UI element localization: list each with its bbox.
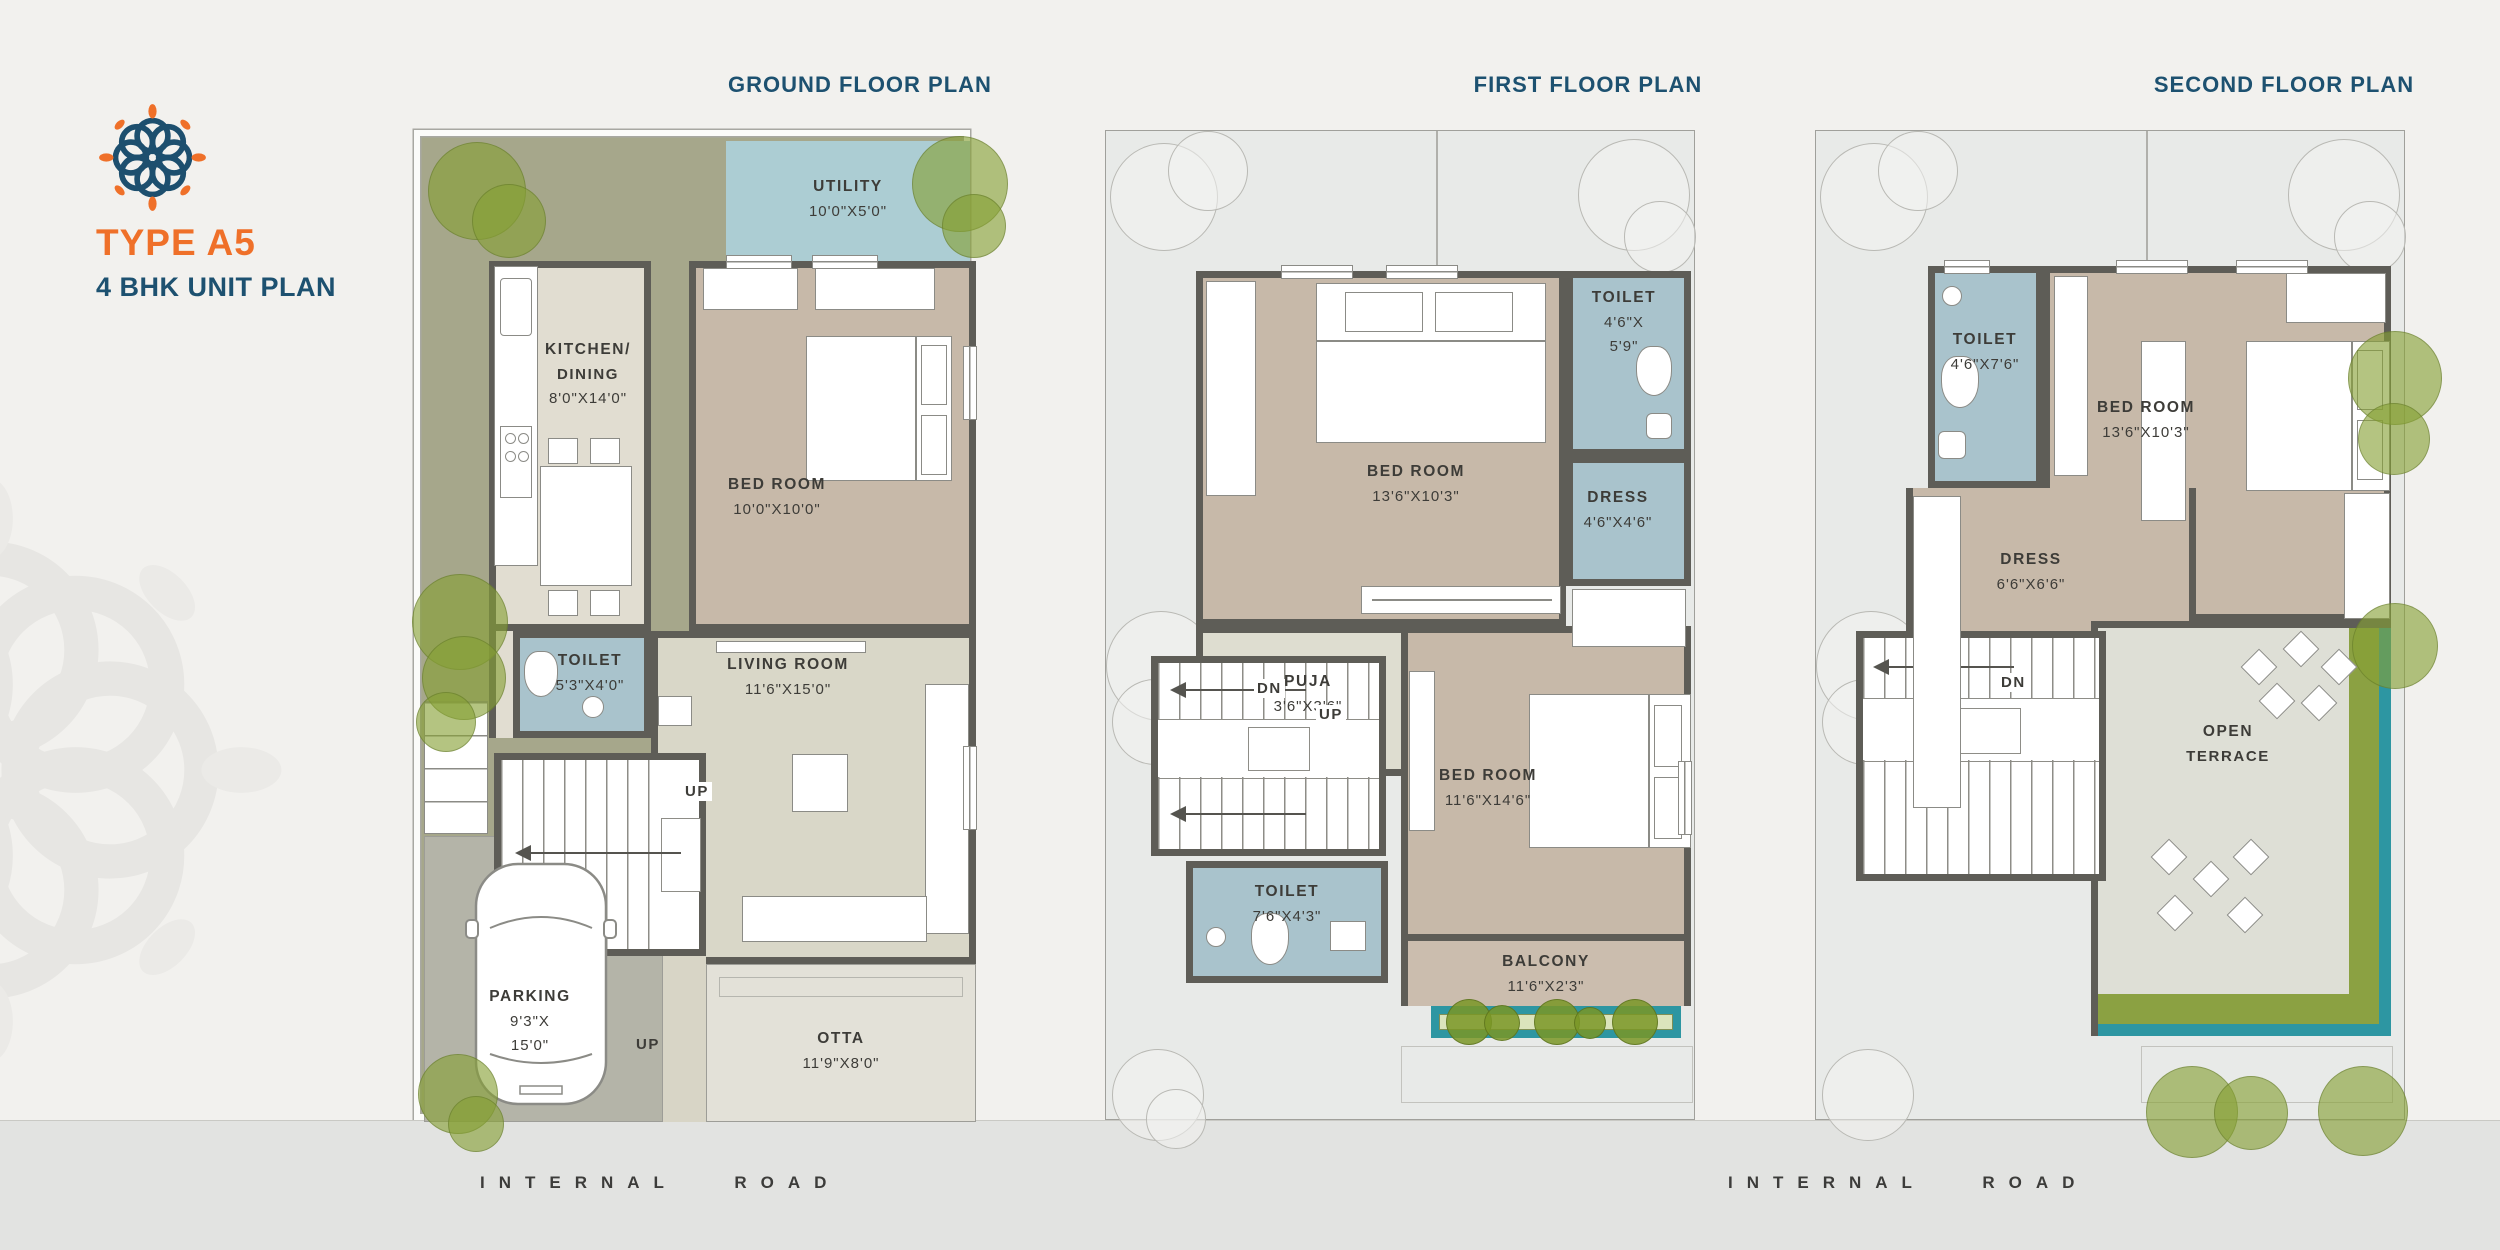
ground-floor-plot: UP [414, 130, 970, 1120]
tree-icon [2318, 1066, 2408, 1156]
drive-up-label: UP [636, 1036, 660, 1053]
otta-step [719, 977, 963, 997]
wardrobe [1572, 589, 1686, 647]
brand-logo-icon [95, 100, 210, 215]
bed-first-2 [1529, 694, 1691, 848]
internal-road-label-right: INTERNAL ROAD [1728, 1173, 2088, 1193]
floor-plan-sheet: TYPE A5 4 BHK UNIT PLAN GROUND FLOOR PLA… [0, 0, 2500, 1250]
window-icon [812, 255, 878, 269]
balcony-label: BALCONY 11'6"X2'3" [1502, 953, 1590, 995]
bedroom-second-label: BED ROOM 13'6"X10'3" [2097, 399, 2195, 441]
shower-icon [582, 696, 604, 718]
internal-road-label-left: INTERNAL ROAD [480, 1173, 840, 1193]
wardrobe [703, 268, 798, 310]
plot-divider [1436, 131, 1438, 271]
washbasin-icon [658, 696, 692, 726]
washbasin-icon [1646, 413, 1672, 439]
window-icon [2116, 260, 2188, 274]
window-icon [1386, 265, 1458, 279]
dining-chair [590, 438, 620, 464]
dress-first-label: DRESS 4'6"X4'6" [1584, 489, 1653, 531]
dining-chair [548, 590, 578, 616]
kitchen-stove [500, 426, 532, 498]
window-icon [1944, 260, 1990, 274]
bed-ground [806, 336, 952, 481]
mirror-panel [1409, 671, 1435, 831]
stair-dn-label: DN [1998, 673, 2029, 692]
dress-second-label: DRESS 6'6"X6'6" [1997, 551, 2066, 593]
bush-icon [1574, 1007, 1606, 1039]
dresser [1361, 586, 1561, 614]
coffee-table [792, 754, 848, 812]
sofa-chaise [742, 896, 927, 942]
bedroom2-first-label: BED ROOM 11'6"X14'6" [1439, 767, 1537, 809]
window-icon [963, 746, 977, 830]
bush-icon [1612, 999, 1658, 1045]
dining-chair [548, 438, 578, 464]
toilet-ground-label: TOILET 5'3"X4'0" [556, 652, 625, 694]
tree-outline-icon [1168, 131, 1248, 211]
tv-unit [716, 641, 866, 653]
plot-divider [2146, 131, 2148, 266]
toilet1-first-label: TOILET 4'6"X 5'9" [1592, 289, 1656, 355]
first-floor-plot: DN UP [1105, 130, 1695, 1120]
washbasin-icon [1330, 921, 1366, 951]
window-icon [726, 255, 792, 269]
open-terrace-label: OPEN TERRACE [2186, 723, 2270, 765]
parking-label: PARKING 9'3"X 15'0" [489, 988, 571, 1054]
wardrobe [815, 268, 935, 310]
brand-unit-label: 4 BHK UNIT PLAN [96, 272, 336, 303]
toilet-second-label: TOILET 4'6"X7'6" [1951, 331, 2020, 373]
shower-icon [1942, 286, 1962, 306]
dining-chair [590, 590, 620, 616]
ground-floor-title: GROUND FLOOR PLAN [728, 72, 992, 98]
window-icon [963, 346, 977, 420]
window-icon [1281, 265, 1353, 279]
wardrobe [1206, 281, 1256, 496]
second-floor-plot: DN [1815, 130, 2405, 1120]
stair-up-label: UP [1316, 705, 1346, 724]
internal-road-band: INTERNAL ROAD INTERNAL ROAD [0, 1120, 2500, 1250]
porch-outline [1401, 1046, 1693, 1103]
wardrobe [2344, 493, 2390, 619]
tree-outline-icon [1146, 1089, 1206, 1149]
first-floor-title: FIRST FLOOR PLAN [1474, 72, 1703, 98]
tree-icon [2358, 403, 2430, 475]
shower-icon [1206, 927, 1226, 947]
utility-label: UTILITY 10'0"X5'0" [809, 178, 887, 220]
tree-outline-icon [1624, 201, 1696, 273]
tree-icon [942, 194, 1006, 258]
washbasin-icon [1938, 431, 1966, 459]
wardrobe [1913, 496, 1961, 808]
watermark-motif-icon [0, 450, 310, 1090]
kitchen-sink [500, 278, 532, 336]
tree-icon [2214, 1076, 2288, 1150]
tree-outline-icon [2334, 201, 2406, 273]
dining-table [540, 466, 632, 586]
toilet2-first-label: TOILET 7'6"X4'3" [1253, 883, 1322, 925]
living-label: LIVING ROOM 11'6"X15'0" [727, 656, 849, 698]
window-icon [1678, 761, 1692, 835]
tree-outline-icon [1878, 131, 1958, 211]
stair-up-label: UP [682, 782, 712, 801]
bush-icon [1484, 1005, 1520, 1041]
bed-first-1 [1316, 283, 1546, 443]
tree-icon [448, 1096, 504, 1152]
open-terrace [2091, 621, 2391, 1036]
tree-icon [416, 692, 476, 752]
wardrobe [2286, 273, 2386, 323]
bedroom-ground-label: BED ROOM 10'0"X10'0" [728, 476, 826, 518]
bedroom1-first-label: BED ROOM 13'6"X10'3" [1367, 463, 1465, 505]
tree-outline-icon [1822, 1049, 1914, 1141]
second-floor-title: SECOND FLOOR PLAN [2154, 72, 2414, 98]
staircase-second [1856, 631, 2106, 881]
wc-icon [524, 651, 558, 697]
kitchen-label: KITCHEN/ DINING 8'0"X14'0" [545, 341, 631, 407]
tree-icon [2352, 603, 2438, 689]
brand-type-label: TYPE A5 [96, 222, 256, 264]
window-icon [2236, 260, 2308, 274]
tree-icon [472, 184, 546, 258]
otta-label: OTTA 11'9"X8'0" [803, 1030, 880, 1072]
door-panel [2054, 276, 2088, 476]
stair-dn-label: DN [1254, 679, 1285, 698]
